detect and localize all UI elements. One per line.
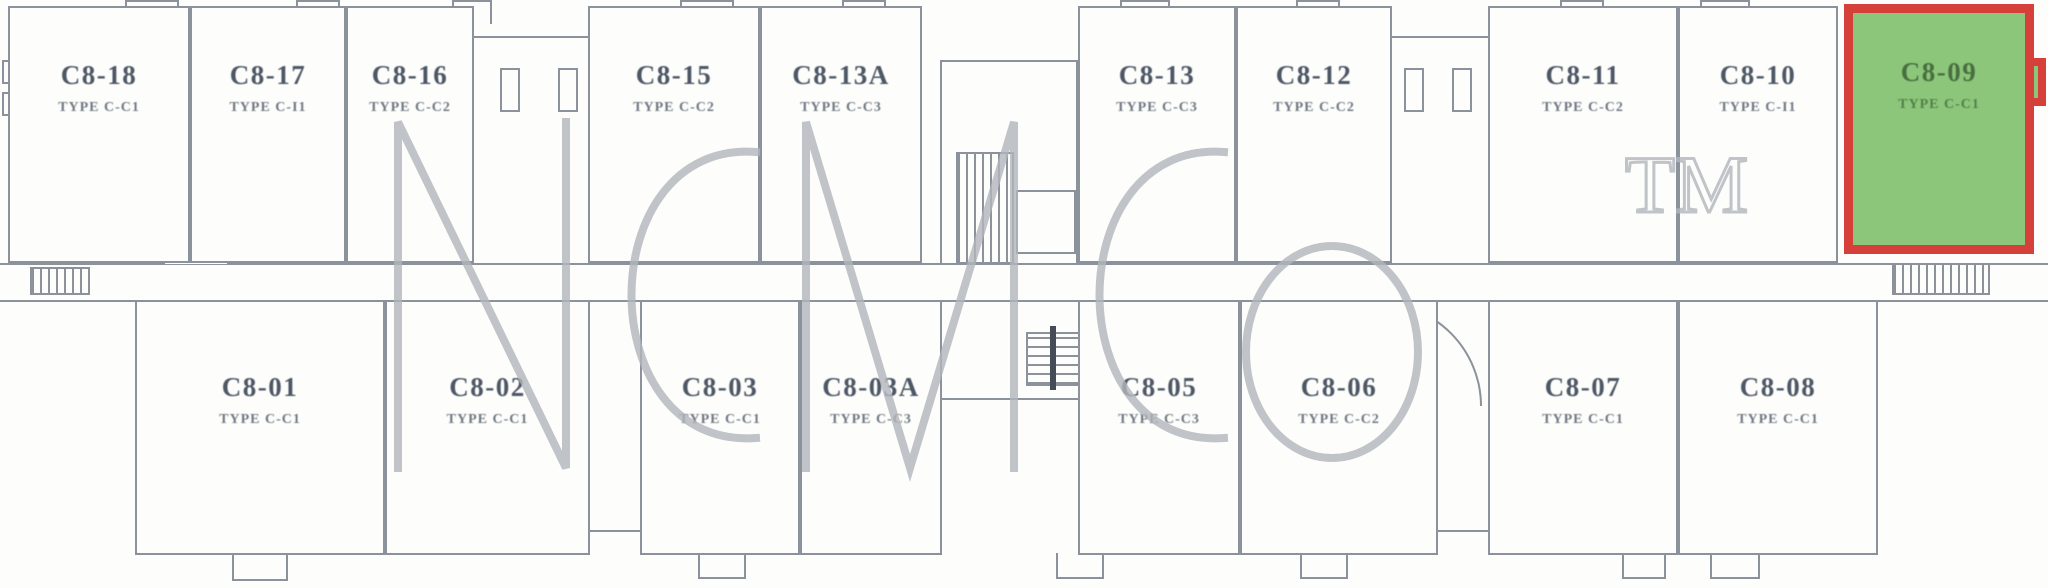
unit-c8-13a[interactable]: C8-13ATYPE C-C3 <box>760 6 922 263</box>
bay-window <box>1710 553 1760 579</box>
unit-id-label: C8-10 <box>1680 60 1836 91</box>
pilaster <box>500 68 520 112</box>
unit-c8-16[interactable]: C8-16TYPE C-C2 <box>346 6 474 263</box>
unit-c8-01[interactable]: C8-01TYPE C-C1 <box>135 300 385 555</box>
unit-id-label: C8-17 <box>192 60 344 91</box>
unit-type-label: TYPE C-C1 <box>642 412 798 428</box>
unit-c8-13[interactable]: C8-13TYPE C-C3 <box>1078 6 1236 263</box>
bay-window <box>698 553 746 579</box>
unit-id-label: C8-11 <box>1490 60 1676 91</box>
unit-c8-15[interactable]: C8-15TYPE C-C2 <box>588 6 760 263</box>
unit-id-label: C8-13A <box>762 60 920 91</box>
unit-type-label: TYPE C-I1 <box>192 100 344 116</box>
unit-c8-17[interactable]: C8-17TYPE C-I1 <box>190 6 346 263</box>
wall-line <box>474 36 588 38</box>
grill-hatch <box>1892 263 1990 295</box>
wall-line <box>1438 530 1488 532</box>
unit-id-label: C8-16 <box>348 60 472 91</box>
unit-id-label: C8-15 <box>590 60 758 91</box>
unit-id-label: C8-18 <box>10 60 188 91</box>
grill-hatch <box>956 152 1014 264</box>
unit-type-label: TYPE C-C3 <box>1080 412 1238 428</box>
wall-line <box>590 530 640 532</box>
unit-c8-05[interactable]: C8-05TYPE C-C3 <box>1078 300 1240 555</box>
unit-type-label: TYPE C-C1 <box>1853 97 2025 113</box>
unit-c8-03[interactable]: C8-03TYPE C-C1 <box>640 300 800 555</box>
unit-type-label: TYPE C-C1 <box>1490 412 1676 428</box>
unit-id-label: C8-01 <box>137 372 383 403</box>
unit-type-label: TYPE C-C2 <box>1242 412 1436 428</box>
unit-c8-03a[interactable]: C8-03ATYPE C-C3 <box>800 300 942 555</box>
unit-c8-09[interactable]: C8-09TYPE C-C1 <box>1844 4 2034 254</box>
unit-c8-06[interactable]: C8-06TYPE C-C2 <box>1240 300 1438 555</box>
unit-type-label: TYPE C-C2 <box>348 100 472 116</box>
unit-type-label: TYPE C-C3 <box>802 412 940 428</box>
unit-type-label: TYPE C-I1 <box>1680 100 1836 116</box>
bay-window <box>1300 553 1348 579</box>
unit-c8-07[interactable]: C8-07TYPE C-C1 <box>1488 300 1678 555</box>
core-room <box>1016 190 1076 254</box>
unit-type-label: TYPE C-C3 <box>1080 100 1234 116</box>
grill-hatch <box>30 267 90 295</box>
stair-rail <box>1050 326 1056 390</box>
unit-c8-11[interactable]: C8-11TYPE C-C2 <box>1488 6 1678 263</box>
unit-id-label: C8-05 <box>1080 372 1238 403</box>
pilaster <box>1452 68 1472 112</box>
unit-id-label: C8-13 <box>1080 60 1234 91</box>
unit-c8-02[interactable]: C8-02TYPE C-C1 <box>385 300 590 555</box>
unit-type-label: TYPE C-C2 <box>590 100 758 116</box>
bay-window <box>1056 553 1104 579</box>
unit-type-label: TYPE C-C1 <box>387 412 588 428</box>
unit-id-label: C8-03 <box>642 372 798 403</box>
unit-id-label: C8-07 <box>1490 372 1676 403</box>
wall-line <box>1392 36 1488 38</box>
bay-window <box>1622 553 1666 579</box>
unit-id-label: C8-06 <box>1242 372 1436 403</box>
unit-c8-10[interactable]: C8-10TYPE C-I1 <box>1678 6 1838 263</box>
unit-c8-08[interactable]: C8-08TYPE C-C1 <box>1678 300 1878 555</box>
floor-plan: C8-18TYPE C-C1C8-17TYPE C-I1C8-16TYPE C-… <box>0 0 2048 588</box>
unit-id-label: C8-03A <box>802 372 940 403</box>
unit-c8-18[interactable]: C8-18TYPE C-C1 <box>8 6 190 263</box>
unit-type-label: TYPE C-C2 <box>1238 100 1390 116</box>
bay-window <box>232 553 288 581</box>
unit-type-label: TYPE C-C1 <box>137 412 383 428</box>
unit-type-label: TYPE C-C3 <box>762 100 920 116</box>
unit-id-label: C8-12 <box>1238 60 1390 91</box>
unit-id-label: C8-08 <box>1680 372 1876 403</box>
unit-id-label: C8-09 <box>1853 57 2025 88</box>
unit-type-label: TYPE C-C1 <box>1680 412 1876 428</box>
pilaster <box>1404 68 1424 112</box>
unit-c8-12[interactable]: C8-12TYPE C-C2 <box>1236 6 1392 263</box>
unit-id-label: C8-02 <box>387 372 588 403</box>
unit-type-label: TYPE C-C2 <box>1490 100 1676 116</box>
pilaster <box>558 68 578 112</box>
unit-type-label: TYPE C-C1 <box>10 100 188 116</box>
